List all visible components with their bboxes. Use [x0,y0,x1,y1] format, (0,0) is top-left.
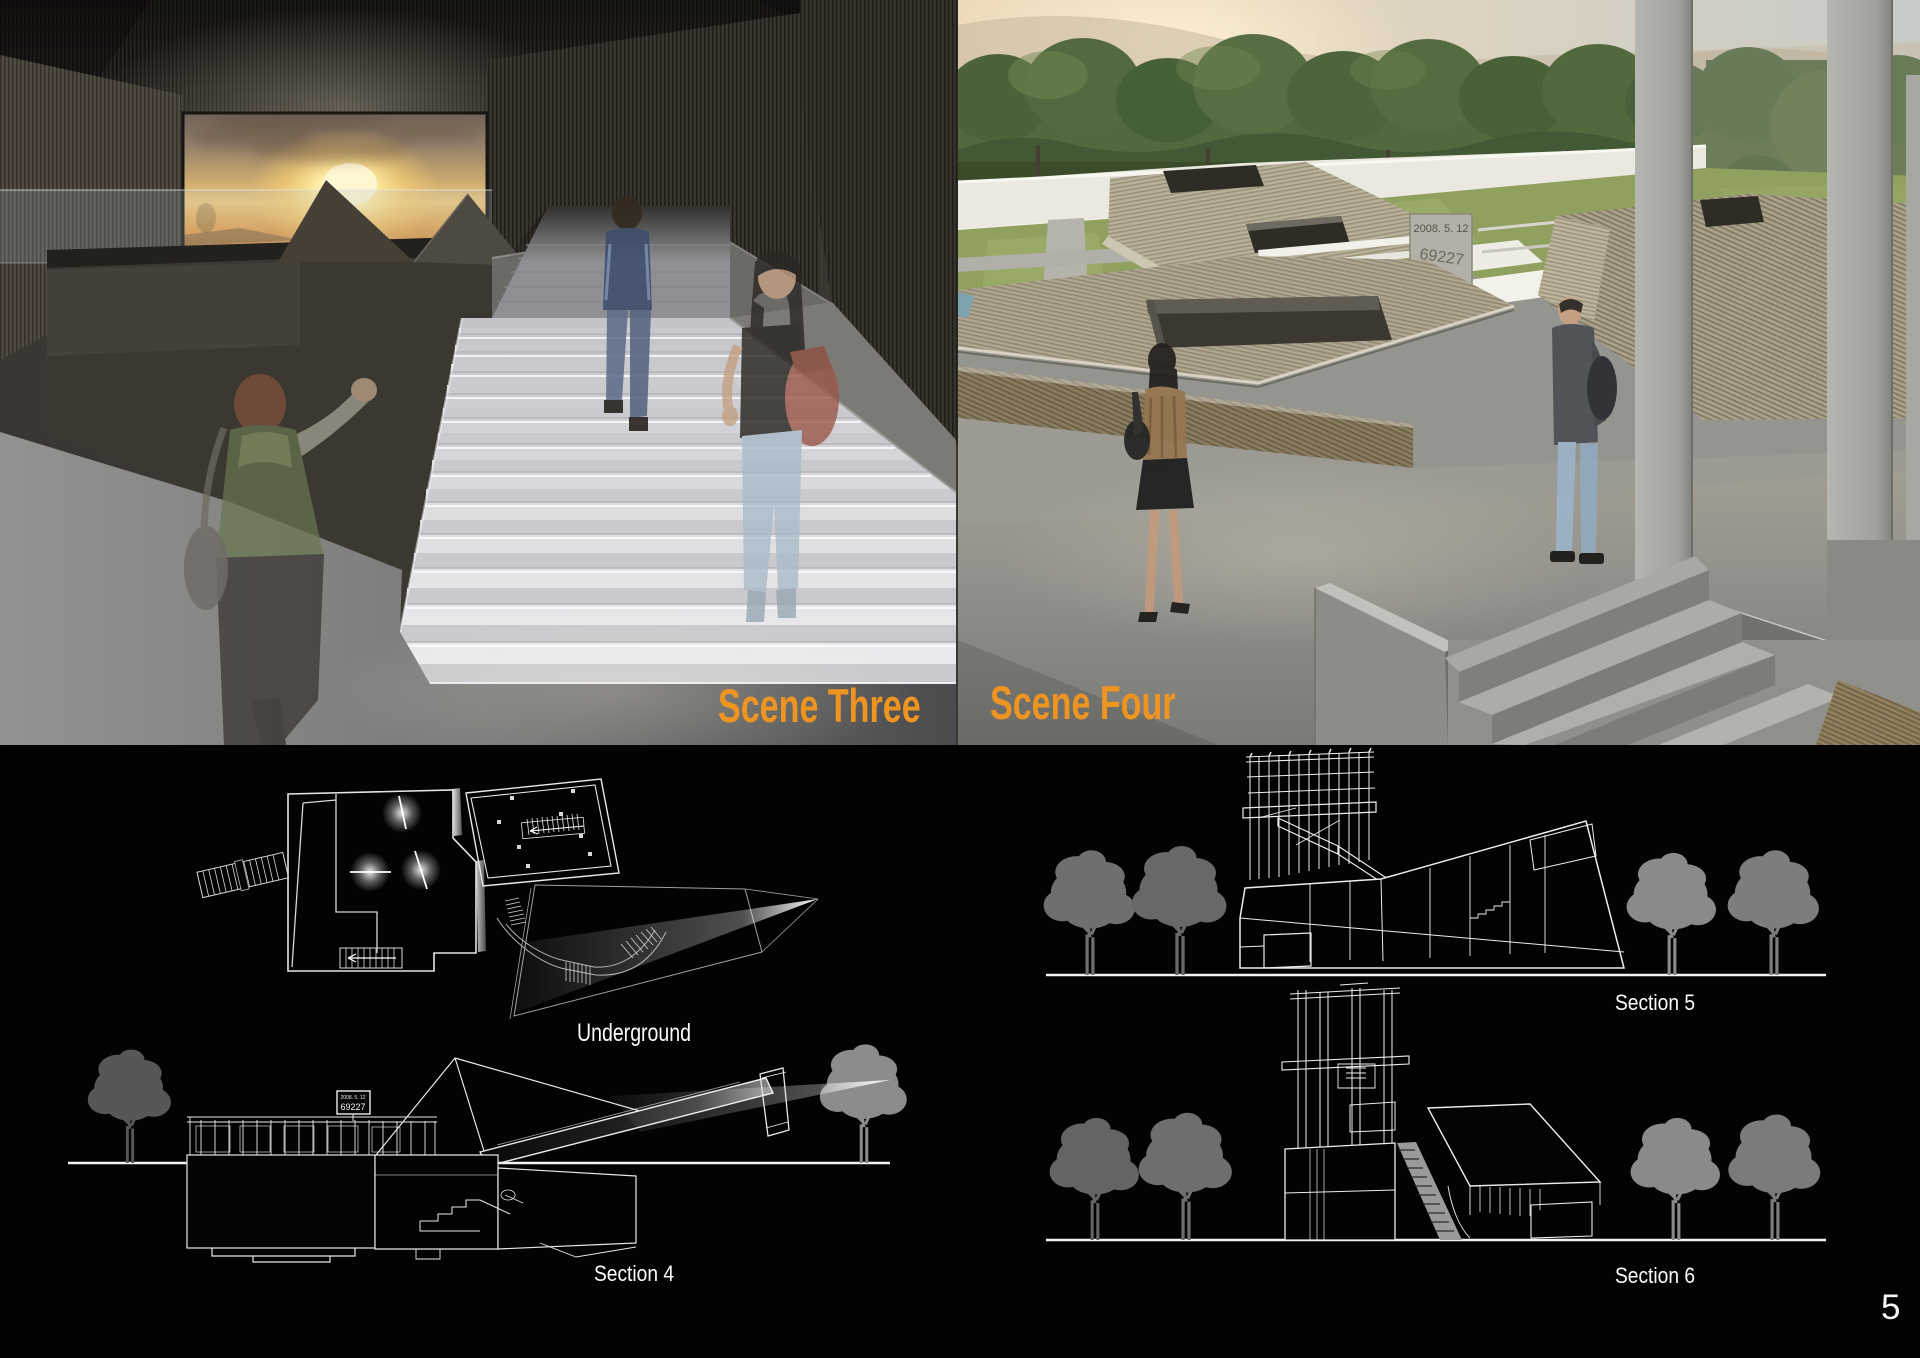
svg-text:69227: 69227 [340,1102,365,1112]
svg-text:Underground: Underground [577,1019,691,1047]
svg-text:Section 4: Section 4 [594,1261,674,1286]
svg-text:2008. 5. 12: 2008. 5. 12 [1413,223,1468,235]
svg-text:Section 6: Section 6 [1615,1263,1695,1288]
svg-text:2008. 5. 12: 2008. 5. 12 [340,1095,365,1101]
svg-text:Section 5: Section 5 [1615,990,1695,1015]
